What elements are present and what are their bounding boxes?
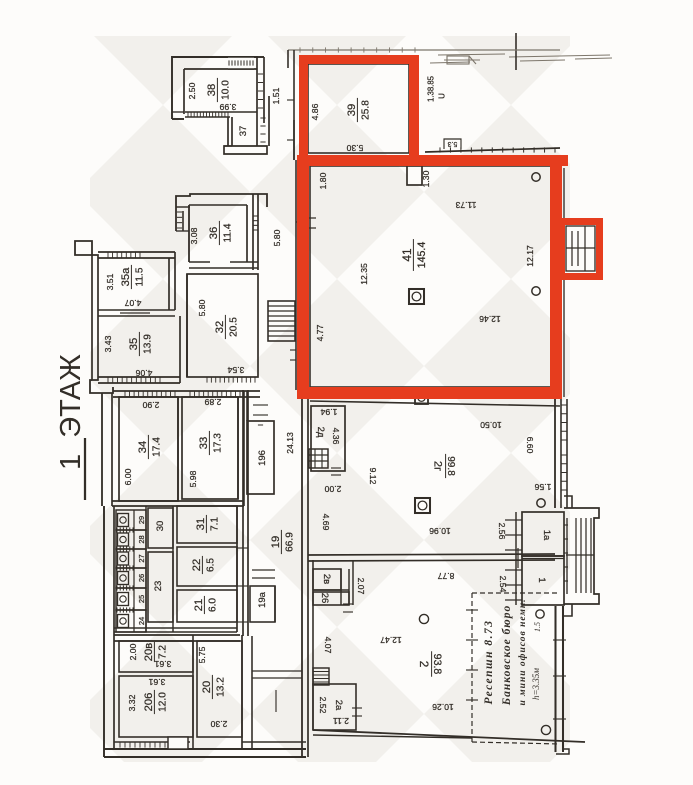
svg-text:8.77: 8.77 [437, 571, 454, 581]
svg-text:2.90: 2.90 [142, 400, 159, 410]
svg-text:66.9: 66.9 [284, 532, 295, 552]
svg-text:2г: 2г [432, 461, 444, 471]
svg-text:93.8: 93.8 [431, 654, 443, 675]
svg-text:1.38.85: 1.38.85 [426, 75, 435, 102]
svg-text:35a: 35a [120, 267, 132, 286]
svg-text:24: 24 [137, 617, 146, 625]
svg-text:2.52: 2.52 [318, 697, 328, 714]
svg-text:10.0: 10.0 [220, 80, 231, 100]
svg-text:Банковское бюро: Банковское бюро [501, 605, 513, 706]
svg-text:6.60: 6.60 [525, 437, 535, 454]
svg-text:11.4: 11.4 [222, 223, 233, 242]
svg-text:7.2: 7.2 [157, 645, 168, 659]
svg-text:2: 2 [417, 661, 431, 668]
svg-text:4.07: 4.07 [124, 298, 141, 308]
svg-text:1.30: 1.30 [421, 170, 431, 187]
svg-text:5.98: 5.98 [188, 470, 198, 487]
svg-text:29: 29 [137, 516, 146, 524]
svg-text:19: 19 [270, 536, 282, 548]
svg-text:3.61: 3.61 [148, 677, 165, 687]
svg-text:4.06: 4.06 [135, 368, 152, 378]
svg-text:37: 37 [238, 126, 249, 137]
svg-text:3.43: 3.43 [103, 335, 113, 352]
svg-text:25: 25 [137, 595, 146, 603]
svg-text:2.56: 2.56 [497, 523, 507, 540]
svg-text:38: 38 [206, 84, 218, 96]
svg-text:206: 206 [143, 693, 155, 712]
svg-text:32: 32 [214, 321, 226, 333]
svg-text:1.56: 1.56 [534, 482, 551, 492]
svg-text:4.36: 4.36 [331, 428, 341, 445]
svg-text:и мини офисов немн.: и мини офисов немн. [517, 599, 528, 706]
svg-text:12.47: 12.47 [380, 635, 402, 645]
svg-text:3.08: 3.08 [189, 227, 199, 244]
svg-text:26: 26 [137, 574, 146, 582]
svg-text:99.8: 99.8 [445, 456, 456, 476]
svg-text:12.46: 12.46 [479, 314, 501, 324]
svg-text:2.00: 2.00 [324, 484, 341, 494]
svg-text:13.9: 13.9 [142, 334, 153, 354]
svg-text:4.86: 4.86 [310, 103, 320, 120]
svg-text:3.99: 3.99 [219, 102, 236, 112]
svg-text:27: 27 [137, 554, 146, 562]
svg-text:20в: 20в [143, 643, 155, 661]
svg-text:1: 1 [536, 577, 547, 582]
svg-text:1.94: 1.94 [320, 407, 337, 417]
svg-text:2.89: 2.89 [204, 397, 221, 407]
svg-text:23: 23 [153, 581, 164, 592]
svg-text:41: 41 [400, 248, 414, 261]
svg-text:3.61: 3.61 [154, 659, 171, 669]
svg-text:2.07: 2.07 [356, 578, 366, 595]
svg-text:6.5: 6.5 [205, 558, 216, 572]
svg-text:31: 31 [195, 518, 207, 530]
svg-text:1a: 1a [541, 530, 552, 541]
svg-text:17.3: 17.3 [212, 433, 223, 453]
svg-text:145.4: 145.4 [416, 242, 428, 269]
svg-text:2a: 2a [333, 700, 344, 711]
svg-text:5.80: 5.80 [197, 299, 207, 316]
svg-text:20.5: 20.5 [228, 317, 239, 337]
svg-text:U: U [438, 93, 447, 99]
svg-text:24.13: 24.13 [285, 432, 295, 454]
svg-text:196: 196 [257, 450, 268, 466]
svg-text:4.69: 4.69 [321, 514, 331, 531]
svg-text:33: 33 [198, 437, 210, 449]
svg-text:17.4: 17.4 [151, 437, 162, 457]
svg-text:9.12: 9.12 [368, 468, 378, 485]
svg-text:6.00: 6.00 [123, 468, 133, 485]
svg-text:h=3.35м: h=3.35м [531, 668, 541, 700]
svg-text:2.54: 2.54 [498, 576, 508, 593]
svg-text:4.07: 4.07 [323, 637, 333, 654]
svg-text:20: 20 [201, 681, 213, 693]
svg-text:34: 34 [137, 441, 149, 453]
svg-text:21: 21 [193, 599, 205, 611]
svg-text:2.00: 2.00 [128, 643, 138, 660]
svg-text:22: 22 [191, 559, 203, 571]
svg-text:1 ЭТАЖ: 1 ЭТАЖ [55, 354, 87, 470]
svg-text:4.77: 4.77 [315, 324, 325, 341]
svg-text:2.30: 2.30 [210, 719, 227, 729]
svg-text:19a: 19a [257, 591, 268, 608]
svg-text:5.75: 5.75 [197, 646, 207, 663]
svg-text:3.54: 3.54 [227, 365, 244, 375]
svg-text:Ресепшн 8.73: Ресепшн 8.73 [483, 620, 495, 705]
svg-text:1.80: 1.80 [318, 172, 328, 189]
svg-text:12.0: 12.0 [157, 692, 168, 712]
svg-text:2.50: 2.50 [187, 82, 197, 99]
svg-text:10.50: 10.50 [480, 420, 502, 430]
svg-text:2д: 2д [315, 427, 326, 438]
svg-text:3.51: 3.51 [105, 273, 115, 290]
svg-text:3.32: 3.32 [127, 694, 137, 711]
svg-text:2в: 2в [321, 574, 332, 584]
svg-text:5.3: 5.3 [448, 140, 458, 147]
svg-text:35: 35 [128, 338, 140, 350]
svg-text:10.96: 10.96 [429, 526, 451, 536]
svg-text:36: 36 [208, 227, 220, 239]
svg-text:12.17: 12.17 [525, 245, 535, 267]
svg-text:7.1: 7.1 [209, 517, 220, 531]
svg-text:1.51: 1.51 [271, 87, 281, 104]
svg-text:2.11: 2.11 [333, 716, 349, 726]
svg-text:12.35: 12.35 [359, 263, 369, 285]
svg-text:5.80: 5.80 [272, 229, 282, 246]
svg-text:10.26: 10.26 [432, 702, 454, 712]
svg-text:25.8: 25.8 [360, 100, 371, 120]
svg-text:5.30: 5.30 [346, 143, 363, 153]
svg-text:26: 26 [319, 593, 330, 604]
svg-text:1.5: 1.5 [533, 622, 542, 632]
svg-text:13.2: 13.2 [215, 677, 226, 697]
svg-text:39: 39 [346, 104, 358, 116]
svg-text:11.5: 11.5 [134, 267, 145, 286]
svg-text:28: 28 [137, 535, 146, 543]
svg-text:11.73: 11.73 [455, 200, 476, 210]
svg-text:6.0: 6.0 [207, 598, 218, 612]
svg-text:30: 30 [155, 521, 166, 532]
